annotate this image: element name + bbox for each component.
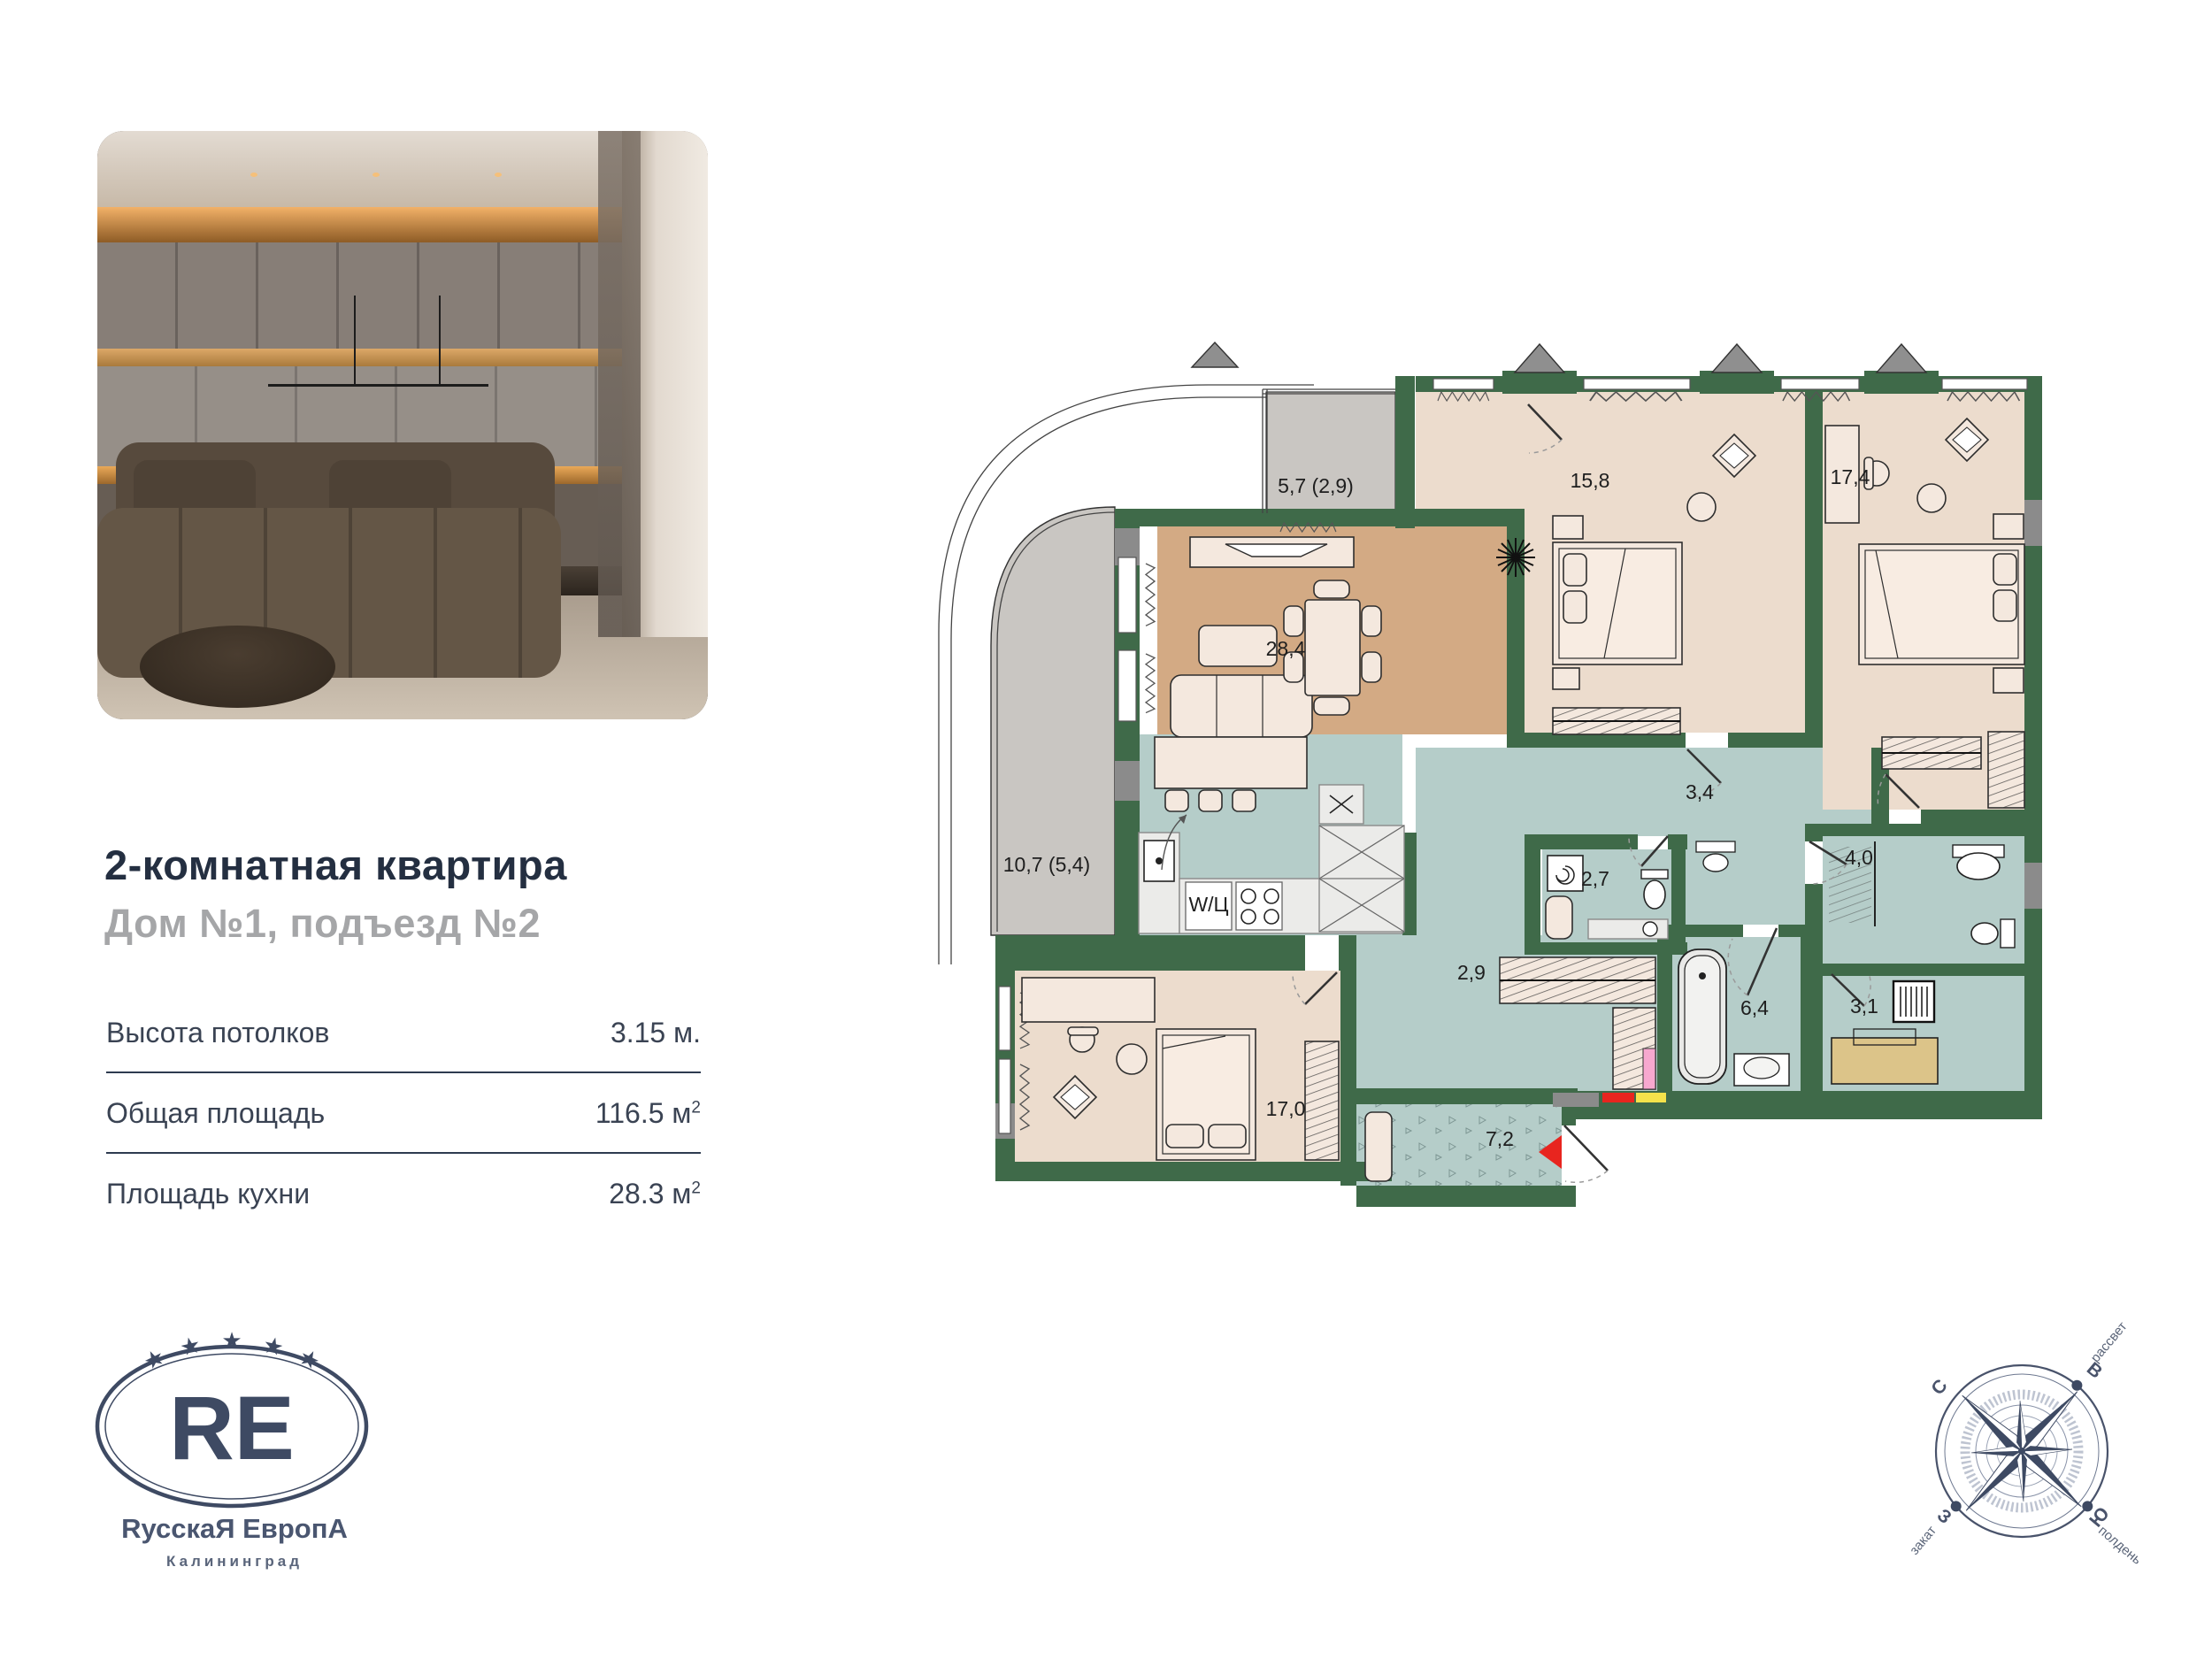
compass-sunrise-label: рассвет bbox=[2088, 1319, 2131, 1366]
photo-ottoman bbox=[140, 626, 335, 708]
page-title: 2-комнатная квартира bbox=[104, 841, 777, 889]
spec-table: Высота потолков 3.15 м. Общая площадь 11… bbox=[106, 993, 701, 1233]
room-label: 3,1 bbox=[1850, 995, 1878, 1018]
room-label: 28,4 bbox=[1266, 637, 1306, 660]
room-label: 2,7 bbox=[1581, 867, 1609, 890]
spec-row-ceiling: Высота потолков 3.15 м. bbox=[106, 993, 701, 1073]
spec-value: 28.3 м2 bbox=[609, 1178, 701, 1210]
room-label: 2,9 bbox=[1457, 961, 1486, 984]
photo-pendant-drop1 bbox=[354, 296, 356, 384]
compass-sunset-label: закат bbox=[1907, 1523, 1939, 1557]
photo-pendant-drop2 bbox=[439, 296, 441, 384]
logo-monogram: RE bbox=[169, 1378, 295, 1479]
room-label: 17,4 bbox=[1831, 465, 1870, 488]
page: 2-комнатная квартира Дом №1, подъезд №2 … bbox=[0, 0, 2212, 1659]
room-label: 7,2 bbox=[1486, 1127, 1514, 1150]
building-subtitle: Дом №1, подъезд №2 bbox=[104, 901, 777, 947]
hallway-floor bbox=[1416, 748, 1871, 836]
star-icon: ★ bbox=[295, 1342, 325, 1375]
spec-row-total-area: Общая площадь 116.5 м2 bbox=[106, 1073, 701, 1154]
entry-marker-yellow bbox=[1636, 1093, 1666, 1102]
spec-value: 3.15 м. bbox=[611, 1017, 701, 1049]
compass-needles bbox=[1957, 1386, 2087, 1517]
spec-label: Общая площадь bbox=[106, 1097, 325, 1130]
room-label: 15,8 bbox=[1571, 469, 1610, 492]
facade-peaks bbox=[1192, 342, 1926, 373]
room-label: 4,0 bbox=[1845, 846, 1873, 869]
star-icon: ★ bbox=[139, 1342, 169, 1375]
logo-stars: ★ ★ ★ ★ ★ bbox=[139, 1327, 325, 1376]
compass-north-label: С bbox=[1927, 1376, 1951, 1399]
room-label: 6,4 bbox=[1740, 996, 1769, 1019]
logo-wordmark: RусскаЯ ЕвропА bbox=[84, 1513, 385, 1545]
spec-row-kitchen-area: Площадь кухни 28.3 м2 bbox=[106, 1154, 701, 1233]
star-icon: ★ bbox=[260, 1331, 286, 1361]
spec-value: 116.5 м2 bbox=[595, 1097, 701, 1130]
star-icon: ★ bbox=[221, 1327, 242, 1354]
company-logo: ★ ★ ★ ★ ★ RE bbox=[84, 1320, 385, 1515]
photo-curtain bbox=[598, 131, 641, 637]
room-label: 10,7 (5,4) bbox=[1003, 853, 1090, 876]
room-label: 5,7 (2,9) bbox=[1278, 474, 1354, 497]
photo-spot2 bbox=[373, 173, 380, 177]
appliance-label: W/Ц bbox=[1188, 893, 1228, 916]
entry-marker-red bbox=[1602, 1093, 1634, 1102]
apartment-photo bbox=[97, 131, 708, 719]
floor-plan: W/Ц bbox=[933, 341, 2079, 1252]
room-label: 17,0 bbox=[1266, 1097, 1306, 1120]
photo-spot3 bbox=[495, 173, 502, 177]
logo-city: Калининград bbox=[84, 1553, 385, 1571]
photo-pendant-bar bbox=[268, 384, 488, 387]
compass-noon-label: полдень bbox=[2095, 1523, 2145, 1567]
corridor-vert-floor bbox=[1416, 836, 1526, 935]
compass-rose: С В Ю З рассвет закат полдень bbox=[1889, 1311, 2163, 1586]
spec-label: Площадь кухни bbox=[106, 1178, 310, 1210]
photo-spot1 bbox=[250, 173, 257, 177]
star-icon: ★ bbox=[177, 1331, 203, 1361]
room-label: 3,4 bbox=[1686, 780, 1714, 803]
vent-shaft-icon bbox=[1496, 538, 1535, 577]
spec-label: Высота потолков bbox=[106, 1017, 329, 1049]
